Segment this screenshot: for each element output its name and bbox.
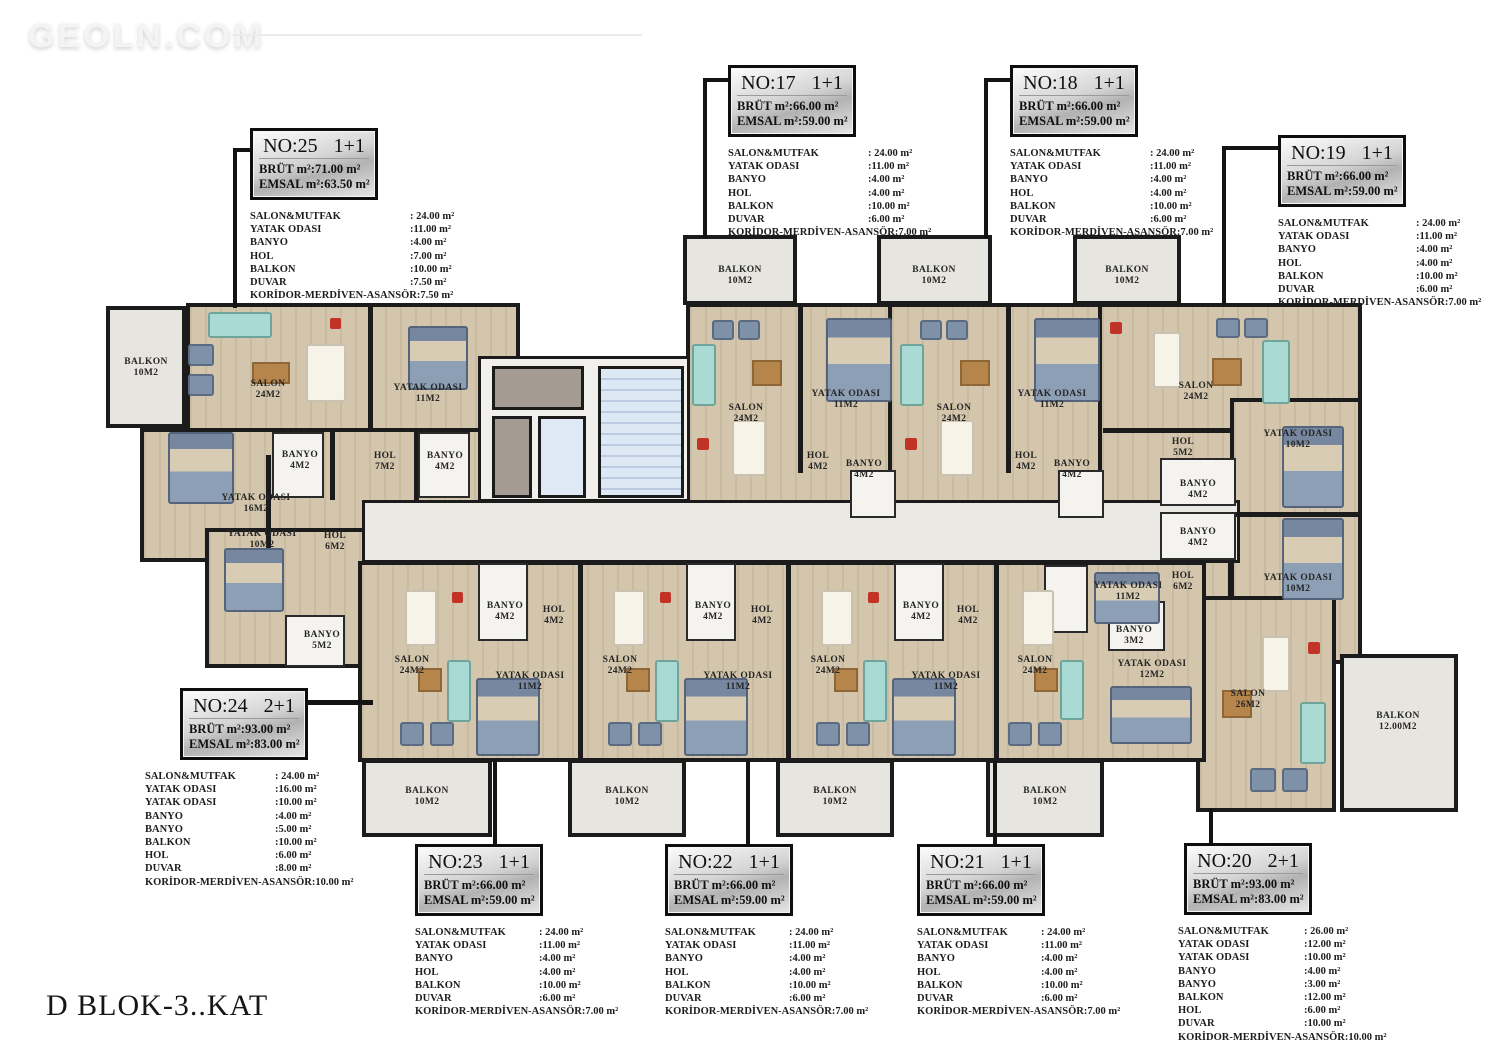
- room-name: YATAK ODASI: [145, 796, 216, 809]
- room-label: BALKON 10M2: [912, 265, 956, 287]
- room-name: BALKON: [415, 979, 461, 992]
- room-area: :6.00 m²: [275, 849, 333, 862]
- room-area: :4.00 m²: [1416, 243, 1474, 256]
- room-area: : 24.00 m²: [868, 147, 926, 160]
- room-area: :5.00 m²: [275, 823, 333, 836]
- room-name: DUVAR: [1178, 1017, 1215, 1030]
- room-name: DUVAR: [145, 862, 182, 875]
- room-name: KORİDOR-MERDİVEN-ASANSÖR: [415, 1005, 582, 1018]
- room-row: YATAK ODASI:11.00 m²: [250, 223, 468, 236]
- room-name: SALON&MUTFAK: [1010, 147, 1101, 160]
- room-row: YATAK ODASI:11.00 m²: [665, 939, 847, 952]
- dining-table: [405, 590, 437, 646]
- room-name: HOL: [415, 966, 438, 979]
- connector-line-19: [1222, 146, 1226, 304]
- room-row: YATAK ODASI:11.00 m²: [1278, 230, 1474, 243]
- connector-line-17: [705, 78, 730, 82]
- room-area: :11.00 m²: [868, 160, 926, 173]
- armchair: [738, 320, 760, 340]
- room-name: DUVAR: [917, 992, 954, 1005]
- room-label: BANYO 4M2: [487, 601, 523, 623]
- unit-header: NO:221+1 BRÜT m²:66.00 m² EMSAL m²:59.00…: [665, 844, 793, 916]
- room-name: SALON&MUTFAK: [250, 210, 341, 223]
- connector-line-23: [493, 760, 497, 846]
- room-row: HOL:4.00 m²: [917, 966, 1099, 979]
- room-area: :12.00 m²: [1304, 991, 1362, 1004]
- unit-info-panel-18: NO:181+1 BRÜT m²:66.00 m² EMSAL m²:59.00…: [1010, 65, 1208, 239]
- armchair: [638, 722, 662, 746]
- armchair: [1008, 722, 1032, 746]
- unit-type: 1+1: [1094, 71, 1125, 95]
- elevator-shaft: [492, 416, 532, 498]
- unit-header: NO:181+1 BRÜT m²:66.00 m² EMSAL m²:59.00…: [1010, 65, 1138, 137]
- room-area: :10.00 m²: [1150, 200, 1208, 213]
- room-name: KORİDOR-MERDİVEN-ASANSÖR: [1178, 1031, 1345, 1044]
- room-area: :6.00 m²: [1416, 283, 1474, 296]
- unit-emsal: EMSAL m²:83.00 m²: [189, 737, 299, 752]
- room-area: :7.00 m²: [832, 1005, 868, 1018]
- room-label: BANYO 4M2: [1180, 479, 1216, 501]
- room-row: YATAK ODASI:11.00 m²: [728, 160, 926, 173]
- room-name: YATAK ODASI: [145, 783, 216, 796]
- room-area: :8.00 m²: [275, 862, 333, 875]
- elevator-shaft: [492, 366, 584, 410]
- room-name: KORİDOR-MERDİVEN-ASANSÖR: [1010, 226, 1177, 239]
- room-area: :6.00 m²: [539, 992, 597, 1005]
- unit-emsal: EMSAL m²:59.00 m²: [1287, 184, 1397, 199]
- room-name: SALON&MUTFAK: [665, 926, 756, 939]
- wall-divider: [1230, 512, 1362, 517]
- sofa: [447, 660, 471, 722]
- room-label: SALON 24M2: [395, 655, 430, 677]
- room-label: BALKON 10M2: [124, 357, 168, 379]
- room-list: SALON&MUTFAK: 26.00 m²YATAK ODASI:12.00 …: [1178, 925, 1362, 1044]
- armchair: [816, 722, 840, 746]
- room-area: :4.00 m²: [1041, 952, 1099, 965]
- room-area: :4.00 m²: [1041, 966, 1099, 979]
- room-label: BALKON 10M2: [405, 786, 449, 808]
- unit-type: 1+1: [812, 71, 843, 95]
- room-name: HOL: [1178, 1004, 1201, 1017]
- room-row: SALON&MUTFAK: 24.00 m²: [665, 926, 847, 939]
- room-area: :10.00 m²: [275, 836, 333, 849]
- room-label: YATAK ODASI 11M2: [394, 383, 463, 405]
- armchair: [400, 722, 424, 746]
- room-name: BANYO: [1010, 173, 1048, 186]
- room-list: SALON&MUTFAK: 24.00 m²YATAK ODASI:11.00 …: [415, 926, 597, 1018]
- room-name: DUVAR: [415, 992, 452, 1005]
- room-row: KORİDOR-MERDİVEN-ASANSÖR:7.00 m²: [917, 1005, 1099, 1018]
- connector-line-18: [984, 78, 988, 238]
- unit-brut: BRÜT m²:66.00 m²: [1287, 169, 1397, 184]
- room-row: HOL:4.00 m²: [665, 966, 847, 979]
- room-label: BANYO 4M2: [1054, 459, 1090, 481]
- room-label: YATAK ODASI 11M2: [704, 671, 773, 693]
- room-row: BANYO:4.00 m²: [145, 810, 333, 823]
- room-name: BALKON: [728, 200, 774, 213]
- room-area: :4.00 m²: [868, 173, 926, 186]
- room-row: YATAK ODASI:10.00 m²: [1178, 951, 1362, 964]
- room-name: BALKON: [250, 263, 296, 276]
- room-label: HOL 4M2: [807, 451, 829, 473]
- room-row: SALON&MUTFAK: 24.00 m²: [1278, 217, 1474, 230]
- bed: [408, 326, 468, 390]
- room-area: :7.00 m²: [1084, 1005, 1120, 1018]
- room-area: :4.00 m²: [868, 187, 926, 200]
- room-label: BANYO 4M2: [695, 601, 731, 623]
- kitchen-stove: [905, 438, 917, 450]
- unit-brut: BRÜT m²:93.00 m²: [189, 722, 299, 737]
- armchair: [946, 320, 968, 340]
- room-name: YATAK ODASI: [1278, 230, 1349, 243]
- room-row: BALKON:10.00 m²: [145, 836, 333, 849]
- armchair: [1282, 768, 1308, 792]
- room-name: YATAK ODASI: [728, 160, 799, 173]
- floor-title: D BLOK-3..KAT: [46, 988, 268, 1024]
- room-area: :7.00 m²: [1445, 296, 1481, 309]
- room-row: HOL:4.00 m²: [415, 966, 597, 979]
- room-area: :7.50 m²: [417, 289, 468, 302]
- room-area: :7.00 m²: [582, 1005, 618, 1018]
- room-name: BALKON: [665, 979, 711, 992]
- armchair: [846, 722, 870, 746]
- unit-number: NO:24: [193, 694, 247, 718]
- room-area: :4.00 m²: [539, 952, 597, 965]
- unit-emsal: EMSAL m²:63.50 m²: [259, 177, 369, 192]
- room-area: :10.00 m²: [539, 979, 597, 992]
- room-row: BANYO:4.00 m²: [1010, 173, 1208, 186]
- room-name: HOL: [665, 966, 688, 979]
- room-row: DUVAR:6.00 m²: [1010, 213, 1208, 226]
- room-label: BANYO 4M2: [903, 601, 939, 623]
- unit-number: NO:19: [1291, 141, 1345, 165]
- bed: [1110, 686, 1192, 744]
- room-area: :11.00 m²: [1416, 230, 1474, 243]
- header-line: [232, 34, 642, 36]
- unit-emsal: EMSAL m²:83.00 m²: [1193, 892, 1303, 907]
- room-area: :4.00 m²: [1304, 965, 1362, 978]
- room-label: YATAK ODASI 16M2: [222, 493, 291, 515]
- room-row: SALON&MUTFAK: 24.00 m²: [728, 147, 926, 160]
- wall-divider: [330, 430, 335, 500]
- room-row: SALON&MUTFAK: 26.00 m²: [1178, 925, 1362, 938]
- room-area: :10.00 m²: [789, 979, 847, 992]
- floor-plan-page: GEOLN.COM D BLOK-3..KAT BALKON 10M2SALON…: [0, 0, 1500, 1061]
- room-label: HOL 5M2: [1172, 437, 1194, 459]
- room-list: SALON&MUTFAK: 24.00 m²YATAK ODASI:11.00 …: [250, 210, 468, 302]
- room-area: :4.00 m²: [1416, 257, 1474, 270]
- unit-header: NO:231+1 BRÜT m²:66.00 m² EMSAL m²:59.00…: [415, 844, 543, 916]
- room-label: YATAK ODASI 10M2: [1264, 573, 1333, 595]
- room-label: SALON 24M2: [937, 403, 972, 425]
- room-row: HOL:4.00 m²: [1010, 187, 1208, 200]
- kitchen-stove: [868, 592, 879, 603]
- room-name: KORİDOR-MERDİVEN-ASANSÖR: [1278, 296, 1445, 309]
- room-name: SALON&MUTFAK: [728, 147, 819, 160]
- room-label: BANYO 5M2: [304, 630, 340, 652]
- room-area: : 24.00 m²: [1041, 926, 1099, 939]
- room-row: BANYO:4.00 m²: [415, 952, 597, 965]
- room-list: SALON&MUTFAK: 24.00 m²YATAK ODASI:11.00 …: [1010, 147, 1208, 239]
- unit-brut: BRÜT m²:66.00 m²: [424, 878, 534, 893]
- room-area: :11.00 m²: [1041, 939, 1099, 952]
- wall-divider: [1103, 428, 1233, 433]
- room-row: KORİDOR-MERDİVEN-ASANSÖR:10.00 m²: [145, 876, 333, 889]
- room-name: HOL: [728, 187, 751, 200]
- sofa: [1060, 660, 1084, 720]
- coffee-table: [752, 360, 782, 386]
- room-name: YATAK ODASI: [665, 939, 736, 952]
- room-area: : 24.00 m²: [275, 770, 333, 783]
- room-name: BANYO: [1278, 243, 1316, 256]
- unit-type: 2+1: [264, 694, 295, 718]
- kitchen-stove: [330, 318, 341, 329]
- room-name: DUVAR: [665, 992, 702, 1005]
- room-row: BALKON:10.00 m²: [917, 979, 1099, 992]
- room-name: KORİDOR-MERDİVEN-ASANSÖR: [917, 1005, 1084, 1018]
- room-name: BALKON: [1010, 200, 1056, 213]
- room-area: :4.00 m²: [1150, 187, 1208, 200]
- room-area: :4.00 m²: [410, 236, 468, 249]
- unit-number: NO:17: [741, 71, 795, 95]
- unit-type: 1+1: [749, 850, 780, 874]
- sofa: [900, 344, 924, 406]
- unit-info-panel-20: NO:202+1 BRÜT m²:93.00 m² EMSAL m²:83.00…: [1178, 843, 1362, 1044]
- room-row: BANYO:4.00 m²: [250, 236, 468, 249]
- unit-info-panel-22: NO:221+1 BRÜT m²:66.00 m² EMSAL m²:59.00…: [665, 844, 847, 1018]
- elevator-cab: [538, 416, 586, 498]
- room-area: :10.00 m²: [312, 876, 354, 889]
- room-name: DUVAR: [1010, 213, 1047, 226]
- room-row: HOL:6.00 m²: [1178, 1004, 1362, 1017]
- unit-brut: BRÜT m²:66.00 m²: [674, 878, 784, 893]
- room-name: BANYO: [145, 823, 183, 836]
- room-row: DUVAR:10.00 m²: [1178, 1017, 1362, 1030]
- room-name: BANYO: [250, 236, 288, 249]
- room-row: BALKON:10.00 m²: [728, 200, 926, 213]
- armchair: [1250, 768, 1276, 792]
- dining-table: [613, 590, 645, 646]
- unit-number: NO:20: [1197, 849, 1251, 873]
- unit-header: NO:251+1 BRÜT m²:71.00 m² EMSAL m²:63.50…: [250, 128, 378, 200]
- room-label: BANYO 3M2: [1116, 625, 1152, 647]
- sofa: [1262, 340, 1290, 404]
- room-label: SALON 24M2: [1179, 381, 1214, 403]
- room-row: KORİDOR-MERDİVEN-ASANSÖR:7.50 m²: [250, 289, 468, 302]
- coffee-table: [1212, 358, 1242, 386]
- kitchen-stove: [697, 438, 709, 450]
- room-label: BALKON 10M2: [1105, 265, 1149, 287]
- room-row: YATAK ODASI:16.00 m²: [145, 783, 333, 796]
- staircase: [598, 366, 684, 498]
- connector-line-22: [746, 760, 750, 846]
- unit-emsal: EMSAL m²:59.00 m²: [674, 893, 784, 908]
- room-row: YATAK ODASI:12.00 m²: [1178, 938, 1362, 951]
- room-name: SALON&MUTFAK: [415, 926, 506, 939]
- room-area: :6.00 m²: [1041, 992, 1099, 1005]
- room-row: HOL:6.00 m²: [145, 849, 333, 862]
- room-name: BANYO: [917, 952, 955, 965]
- room-row: YATAK ODASI:10.00 m²: [145, 796, 333, 809]
- room-label: BANYO 4M2: [282, 450, 318, 472]
- unit-info-panel-19: NO:191+1 BRÜT m²:66.00 m² EMSAL m²:59.00…: [1278, 135, 1474, 309]
- room-list: SALON&MUTFAK: 24.00 m²YATAK ODASI:11.00 …: [917, 926, 1099, 1018]
- armchair: [608, 722, 632, 746]
- room-row: DUVAR:6.00 m²: [415, 992, 597, 1005]
- room-list: SALON&MUTFAK: 24.00 m²YATAK ODASI:11.00 …: [728, 147, 926, 239]
- room-row: KORİDOR-MERDİVEN-ASANSÖR:7.00 m²: [728, 226, 926, 239]
- room-name: BANYO: [1178, 978, 1216, 991]
- armchair: [430, 722, 454, 746]
- unit-type: 1+1: [334, 134, 365, 158]
- room-row: BALKON:10.00 m²: [1278, 270, 1474, 283]
- room-area: :7.00 m²: [410, 250, 468, 263]
- kitchen-stove: [660, 592, 671, 603]
- room-area: :12.00 m²: [1304, 938, 1362, 951]
- room-area: :11.00 m²: [410, 223, 468, 236]
- unit-number: NO:23: [428, 850, 482, 874]
- kitchen-stove: [452, 592, 463, 603]
- room-label: BALKON 10M2: [1023, 786, 1067, 808]
- room-label: YATAK ODASI 10M2: [1264, 429, 1333, 451]
- unit-header: NO:171+1 BRÜT m²:66.00 m² EMSAL m²:59.00…: [728, 65, 856, 137]
- armchair: [1038, 722, 1062, 746]
- room-name: BANYO: [415, 952, 453, 965]
- room-name: KORİDOR-MERDİVEN-ASANSÖR: [250, 289, 417, 302]
- room-area: : 24.00 m²: [789, 926, 847, 939]
- room-row: BANYO:3.00 m²: [1178, 978, 1362, 991]
- room-label: SALON 24M2: [603, 655, 638, 677]
- room-name: YATAK ODASI: [917, 939, 988, 952]
- room-area: : 26.00 m²: [1304, 925, 1362, 938]
- room-area: :10.00 m²: [275, 796, 333, 809]
- room-name: YATAK ODASI: [1178, 951, 1249, 964]
- dining-table: [1153, 332, 1181, 388]
- room-label: HOL 6M2: [324, 531, 346, 553]
- room-area: :6.00 m²: [1150, 213, 1208, 226]
- unit-brut: BRÜT m²:93.00 m²: [1193, 877, 1303, 892]
- room-name: KORİDOR-MERDİVEN-ASANSÖR: [145, 876, 312, 889]
- room-area: :4.00 m²: [789, 966, 847, 979]
- room-row: DUVAR:6.00 m²: [665, 992, 847, 1005]
- room-list: SALON&MUTFAK: 24.00 m²YATAK ODASI:16.00 …: [145, 770, 333, 889]
- unit-type: 2+1: [1268, 849, 1299, 873]
- unit-type: 1+1: [1362, 141, 1393, 165]
- room-area: :10.00 m²: [1041, 979, 1099, 992]
- room-area: :6.00 m²: [1304, 1004, 1362, 1017]
- unit-type: 1+1: [1001, 850, 1032, 874]
- room-area: :11.00 m²: [539, 939, 597, 952]
- sofa: [1300, 702, 1326, 764]
- wall-divider: [368, 305, 373, 430]
- room-row: BALKON:10.00 m²: [665, 979, 847, 992]
- room-name: YATAK ODASI: [1178, 938, 1249, 951]
- room-label: SALON 26M2: [1231, 689, 1266, 711]
- unit-emsal: EMSAL m²:59.00 m²: [1019, 114, 1129, 129]
- room-label: YATAK ODASI 10M2: [228, 529, 297, 551]
- room-row: KORİDOR-MERDİVEN-ASANSÖR:7.00 m²: [665, 1005, 847, 1018]
- room-name: BALKON: [145, 836, 191, 849]
- unit-brut: BRÜT m²:66.00 m²: [737, 99, 847, 114]
- room-label: BANYO 4M2: [1180, 527, 1216, 549]
- armchair: [188, 374, 214, 396]
- room-area: :10.00 m²: [868, 200, 926, 213]
- room-area: :10.00 m²: [1345, 1031, 1387, 1044]
- sofa: [655, 660, 679, 722]
- room-row: BALKON:10.00 m²: [415, 979, 597, 992]
- unit-number: NO:25: [263, 134, 317, 158]
- room-name: HOL: [1010, 187, 1033, 200]
- dining-table: [940, 420, 974, 476]
- unit-type: 1+1: [499, 850, 530, 874]
- room-name: SALON&MUTFAK: [1278, 217, 1369, 230]
- room-name: SALON&MUTFAK: [1178, 925, 1269, 938]
- room-name: BALKON: [1178, 991, 1224, 1004]
- room-row: YATAK ODASI:11.00 m²: [415, 939, 597, 952]
- room-area: : 24.00 m²: [539, 926, 597, 939]
- room-row: BANYO:4.00 m²: [1178, 965, 1362, 978]
- unit-info-panel-23: NO:231+1 BRÜT m²:66.00 m² EMSAL m²:59.00…: [415, 844, 597, 1018]
- room-label: HOL 7M2: [374, 451, 396, 473]
- room-row: BANYO:4.00 m²: [665, 952, 847, 965]
- room-area: :4.00 m²: [275, 810, 333, 823]
- coffee-table: [960, 360, 990, 386]
- room-row: KORİDOR-MERDİVEN-ASANSÖR:7.00 m²: [1010, 226, 1208, 239]
- room-row: DUVAR:6.00 m²: [1278, 283, 1474, 296]
- room-row: SALON&MUTFAK: 24.00 m²: [917, 926, 1099, 939]
- kitchen-stove: [1110, 322, 1122, 334]
- room-label: HOL 6M2: [1172, 571, 1194, 593]
- room-label: BALKON 10M2: [813, 786, 857, 808]
- room-label: HOL 4M2: [1015, 451, 1037, 473]
- room-name: YATAK ODASI: [250, 223, 321, 236]
- unit-header: NO:242+1 BRÜT m²:93.00 m² EMSAL m²:83.00…: [180, 688, 308, 760]
- room-area: :7.00 m²: [1177, 226, 1213, 239]
- room-name: BALKON: [1278, 270, 1324, 283]
- room-name: DUVAR: [250, 276, 287, 289]
- wall-divider: [786, 563, 791, 761]
- dining-table: [1022, 590, 1054, 646]
- room-label: SALON 24M2: [811, 655, 846, 677]
- unit-info-panel-25: NO:251+1 BRÜT m²:71.00 m² EMSAL m²:63.50…: [250, 128, 468, 302]
- room-name: DUVAR: [1278, 283, 1315, 296]
- room-row: YATAK ODASI:11.00 m²: [917, 939, 1099, 952]
- armchair: [712, 320, 734, 340]
- unit-brut: BRÜT m²:66.00 m²: [926, 878, 1036, 893]
- room-area: :6.00 m²: [789, 992, 847, 1005]
- armchair: [188, 344, 214, 366]
- room-label: YATAK ODASI 12M2: [1118, 659, 1187, 681]
- room-label: YATAK ODASI 11M2: [1018, 389, 1087, 411]
- room-row: KORİDOR-MERDİVEN-ASANSÖR:10.00 m²: [1178, 1031, 1362, 1044]
- connector-line-18: [986, 78, 1012, 82]
- armchair: [1244, 318, 1268, 338]
- dining-table: [1262, 636, 1290, 692]
- room-row: BANYO:5.00 m²: [145, 823, 333, 836]
- sofa: [692, 344, 716, 406]
- room-area: :6.00 m²: [868, 213, 926, 226]
- connector-line-25: [233, 148, 237, 308]
- room-row: HOL:4.00 m²: [728, 187, 926, 200]
- room-name: DUVAR: [728, 213, 765, 226]
- room-name: SALON&MUTFAK: [145, 770, 236, 783]
- dining-table: [732, 420, 766, 476]
- wall-divider: [798, 303, 803, 473]
- bed: [224, 548, 284, 612]
- room-name: BANYO: [145, 810, 183, 823]
- room-area: :7.00 m²: [895, 226, 931, 239]
- room-label: BANYO 4M2: [846, 459, 882, 481]
